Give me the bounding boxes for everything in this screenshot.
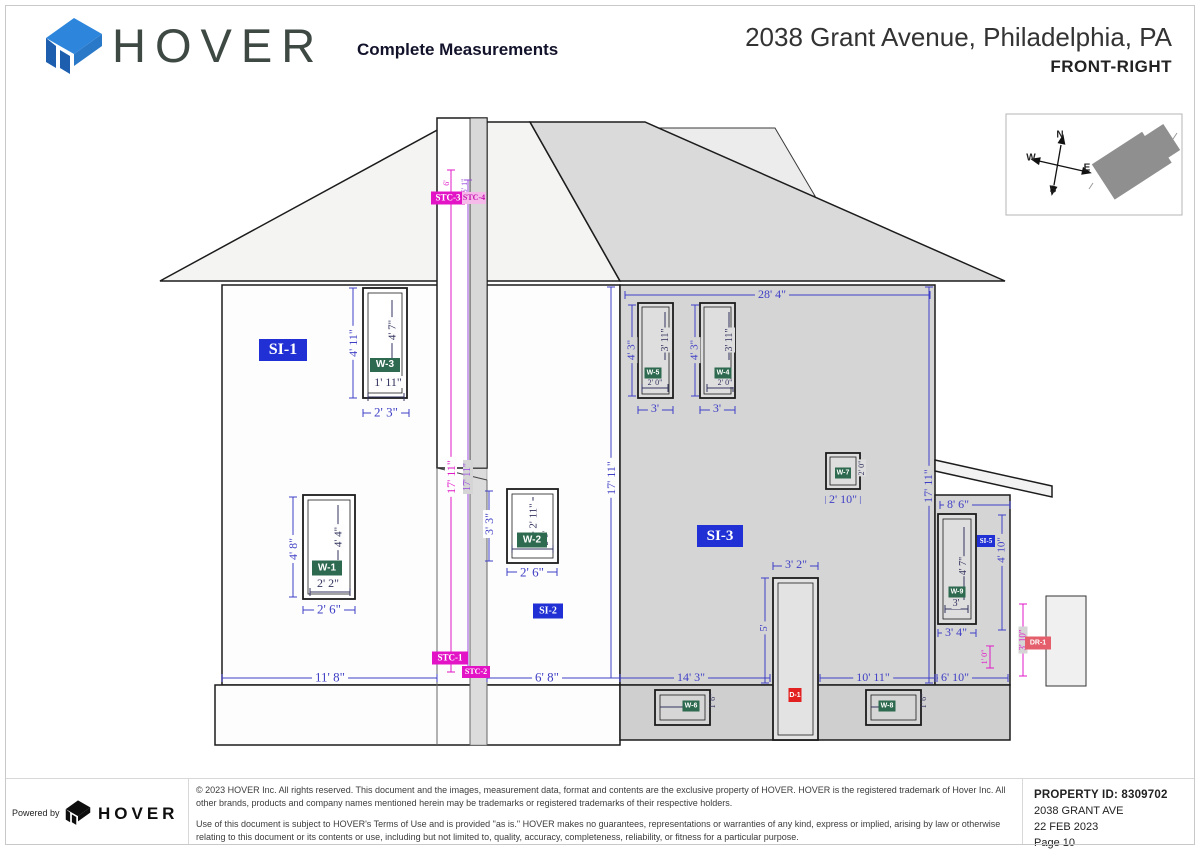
label-si5: SI-5 <box>977 535 995 547</box>
dim-label: 3' <box>648 402 662 414</box>
footer-brand-wordmark: HOVER <box>98 804 178 824</box>
copyright-text: © 2023 HOVER Inc. All rights reserved. T… <box>196 784 1012 809</box>
label-w3: W-3 <box>370 358 400 372</box>
label-dr1: DR-1 <box>1025 637 1051 650</box>
dim-label: 2' 2" <box>314 577 342 589</box>
dim-label: 17' 11" <box>922 466 934 506</box>
label-si1: SI-1 <box>259 339 307 361</box>
terms-text: Use of this document is subject to HOVER… <box>196 818 1012 843</box>
label-w5: W-5 <box>645 368 662 379</box>
label-w1: W-1 <box>312 561 342 576</box>
dim-label: 28' 4" <box>755 288 789 300</box>
dim-label: 17' 11" <box>445 457 457 497</box>
page-number: Page 10 <box>1034 836 1168 851</box>
dim-label: 3' 11" <box>725 327 735 352</box>
dim-label: 4' 11" <box>347 326 359 360</box>
dim-label: 2' 11" <box>529 500 540 531</box>
footer-divider-right <box>1022 778 1023 844</box>
dim-label: 8' 6" <box>944 498 972 510</box>
footer-divider <box>6 778 1194 779</box>
label-w7: W-7 <box>835 468 851 479</box>
document-date: 22 FEB 2023 <box>1034 820 1168 836</box>
dim-label: 4' 7" <box>959 556 969 576</box>
dim-label: 2' 10" <box>826 493 860 505</box>
dim-label: 3' <box>952 599 961 609</box>
hover-footer-logo-icon <box>64 798 92 828</box>
label-w9: W-9 <box>949 587 966 598</box>
dim-label: 2' 0" <box>717 379 734 387</box>
dim-label: 11' 8" <box>312 671 348 684</box>
dim-label: 5' <box>760 622 770 635</box>
label-w8: W-8 <box>879 701 896 712</box>
dim-label: 4' 3" <box>627 337 638 363</box>
label-stc2: STC-2 <box>462 666 490 678</box>
dim-label: 6' <box>443 180 451 185</box>
dim-label: 2' 3" <box>371 406 401 419</box>
dim-label: 2' 0" <box>647 379 664 387</box>
label-w4: W-4 <box>715 368 732 379</box>
compass-rose <box>1005 113 1183 216</box>
label-stc3: STC-3 <box>431 192 465 205</box>
dim-label: 1' 6" <box>709 694 717 709</box>
dim-label: 3' 4" <box>942 626 970 638</box>
dim-label: 10' 11" <box>853 671 893 683</box>
dim-label: 4' 4" <box>334 524 345 550</box>
label-d1: D-1 <box>789 688 802 702</box>
powered-by-label: Powered by <box>12 808 60 818</box>
dim-label: 1' 0" <box>981 647 989 668</box>
dim-label: 17' 11" <box>463 460 473 494</box>
dim-label: 4' 3" <box>690 337 701 363</box>
measurement-document: { "header": { "brand": "HOVER", "doc_typ… <box>0 0 1200 850</box>
dim-label: 1' 6" <box>920 694 928 709</box>
compass-n-label: N <box>1056 130 1063 141</box>
dim-label: 3' <box>710 402 724 414</box>
dim-label: 6' 8" <box>532 671 562 684</box>
dim-label: 2' 0" <box>858 460 866 477</box>
compass-w-label: W <box>1026 153 1035 164</box>
label-stc1: STC-1 <box>432 652 468 665</box>
dim-label: 3' 3" <box>483 510 495 538</box>
label-w2: W-2 <box>517 533 547 548</box>
footer-divider-left <box>188 778 189 844</box>
dim-label: 2' 6" <box>314 603 344 616</box>
dim-label: 4' 10" <box>997 534 1008 566</box>
property-info-block: PROPERTY ID: 8309702 2038 GRANT AVE 22 F… <box>1034 787 1168 851</box>
dim-label: 3' 2" <box>782 558 810 570</box>
label-si2: SI-2 <box>533 604 563 619</box>
label-si3: SI-3 <box>697 525 743 547</box>
label-stc4: STC-4 <box>462 192 486 204</box>
dim-label: 1' 11" <box>371 376 405 388</box>
property-address-line: 2038 GRANT AVE <box>1034 804 1168 820</box>
dim-label: 14' 3" <box>674 671 708 683</box>
dim-label: 6' 10" <box>938 671 972 683</box>
property-id: PROPERTY ID: 8309702 <box>1034 787 1168 804</box>
dim-label: 17' 11" <box>605 458 617 498</box>
compass-s-label: S <box>1050 185 1057 196</box>
label-w6: W-6 <box>683 701 700 712</box>
compass-e-label: E <box>1084 163 1091 174</box>
dim-label: 4' 7" <box>388 317 399 343</box>
dim-label: 4' 8" <box>287 535 299 563</box>
dim-label: 3' 11" <box>661 327 671 352</box>
dim-label: 2' 6" <box>517 566 547 579</box>
